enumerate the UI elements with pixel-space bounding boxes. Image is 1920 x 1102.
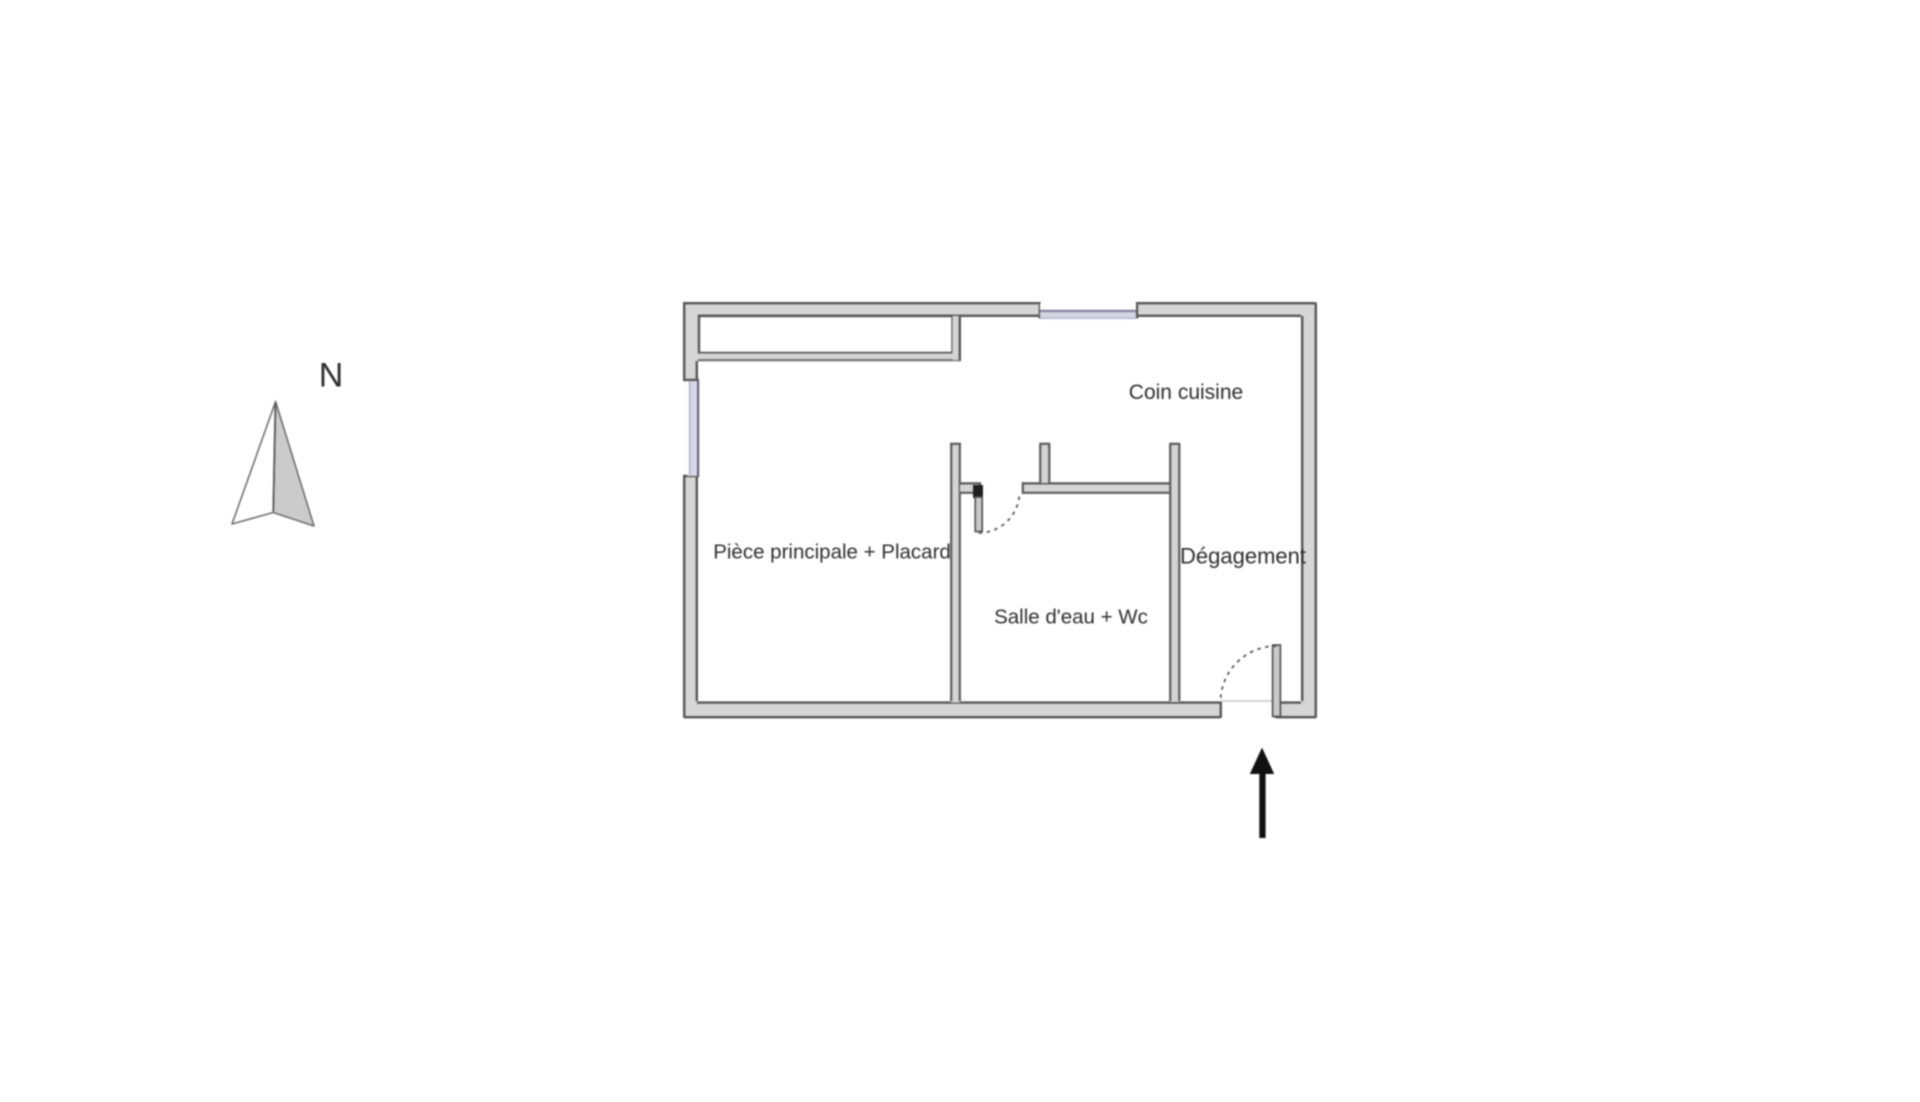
svg-text:Pièce principale + Placard: Pièce principale + Placard [713, 541, 951, 564]
svg-text:N: N [319, 357, 344, 395]
svg-text:Coin cuisine: Coin cuisine [1129, 381, 1243, 404]
svg-text:Salle d'eau + Wc: Salle d'eau + Wc [994, 606, 1148, 629]
svg-text:Dégagement: Dégagement [1180, 544, 1306, 569]
